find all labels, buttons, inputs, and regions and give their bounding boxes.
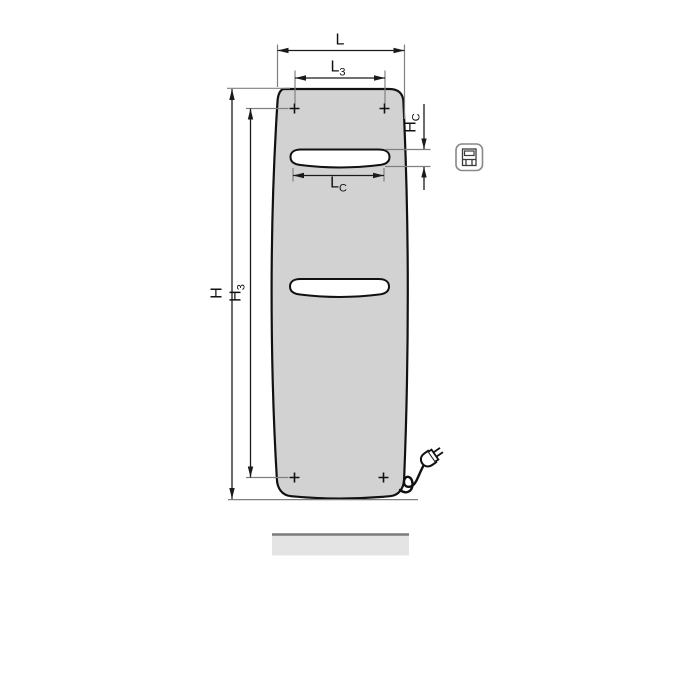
label-dimension-H: H (209, 287, 228, 299)
radiator-dimension-drawing: L L3 H H3 HC LC (0, 0, 700, 700)
panel-slot-middle (290, 279, 389, 297)
floor-strip (272, 534, 409, 556)
drawing-canvas (0, 0, 700, 700)
label-dimension-L: L (336, 32, 345, 51)
label-dimension-H3: H3 (228, 284, 247, 302)
radiator-panel (272, 89, 408, 499)
power-plug-icon (418, 444, 445, 469)
label-dimension-LC: LC (330, 175, 347, 194)
power-cord (400, 444, 445, 492)
panel-slot-top (291, 150, 390, 168)
radiator-front-pictogram-icon (456, 144, 483, 171)
label-dimension-HC: HC (403, 113, 422, 133)
label-dimension-L3: L3 (330, 59, 345, 78)
